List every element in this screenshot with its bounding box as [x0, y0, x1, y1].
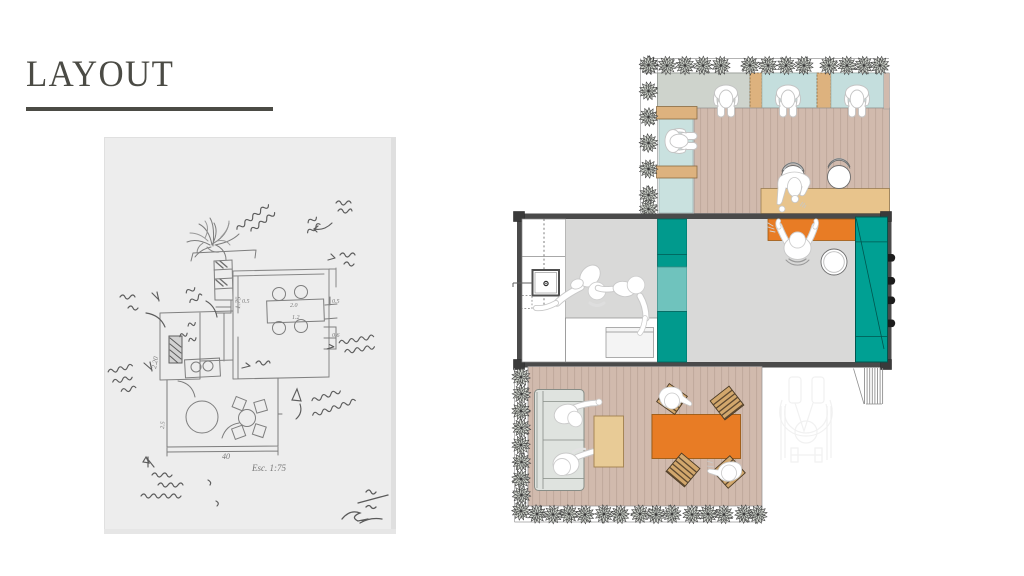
svg-text:0.6: 0.6: [332, 333, 340, 339]
svg-text:0.5: 0.5: [332, 299, 340, 305]
svg-text:40: 40: [222, 452, 230, 461]
svg-text:2.0: 2.0: [290, 303, 298, 309]
svg-text:1.2: 1.2: [292, 315, 300, 321]
svg-text:2.5: 2.5: [160, 421, 167, 429]
svg-text:Esc. 1:75: Esc. 1:75: [251, 463, 286, 473]
svg-text:0.5: 0.5: [242, 299, 250, 305]
